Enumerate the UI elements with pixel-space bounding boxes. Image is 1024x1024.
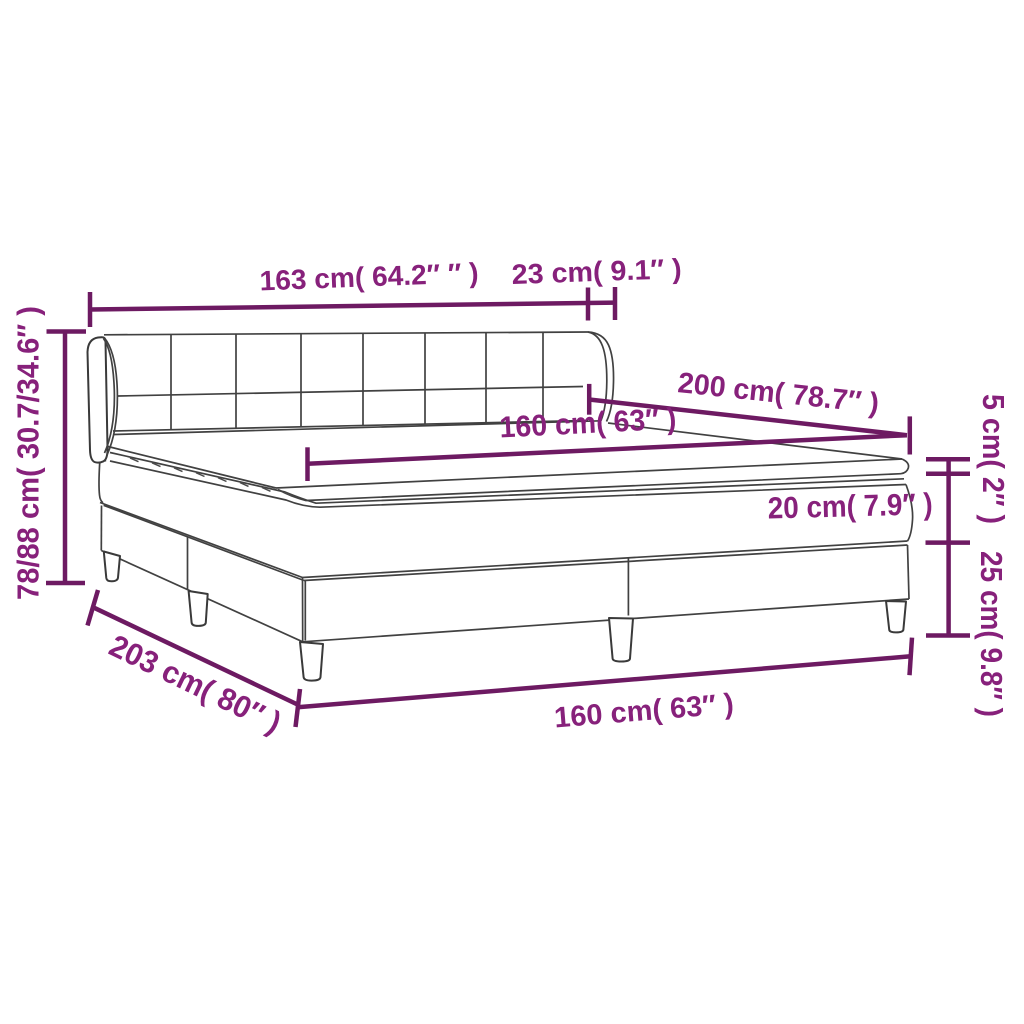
svg-text:25 cm( 9.8″ ): 25 cm( 9.8″ ) (974, 551, 1009, 717)
svg-text:5 cm( 2″ ): 5 cm( 2″ ) (976, 394, 1011, 524)
svg-text:23 cm( 9.1″ ): 23 cm( 9.1″ ) (511, 253, 682, 290)
svg-text:78/88 cm( 30.7/34.6″ ): 78/88 cm( 30.7/34.6″ ) (11, 306, 46, 600)
svg-text:20 cm( 7.9″ ): 20 cm( 7.9″ ) (767, 487, 933, 525)
